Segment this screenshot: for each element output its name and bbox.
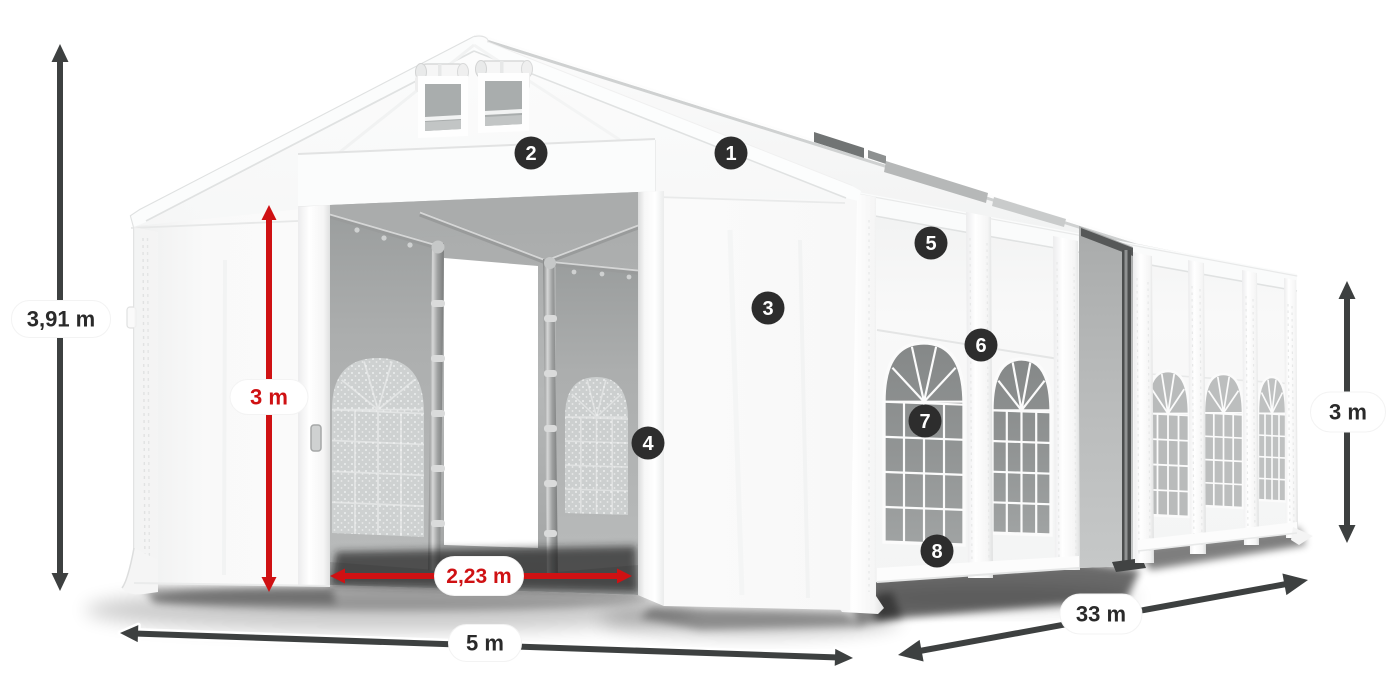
svg-text:33 m: 33 m [1076, 602, 1126, 627]
svg-text:5 m: 5 m [466, 631, 504, 656]
svg-text:3 m: 3 m [1329, 400, 1367, 425]
svg-text:6: 6 [975, 335, 986, 357]
svg-text:1: 1 [725, 143, 736, 165]
svg-text:7: 7 [919, 411, 930, 433]
svg-text:3 m: 3 m [250, 385, 288, 410]
svg-text:3: 3 [762, 298, 773, 320]
svg-text:8: 8 [931, 541, 942, 563]
svg-text:2,23 m: 2,23 m [446, 565, 511, 588]
svg-text:4: 4 [642, 433, 654, 455]
svg-text:3,91 m: 3,91 m [27, 307, 96, 332]
svg-text:2: 2 [525, 143, 536, 165]
svg-text:5: 5 [925, 233, 936, 255]
